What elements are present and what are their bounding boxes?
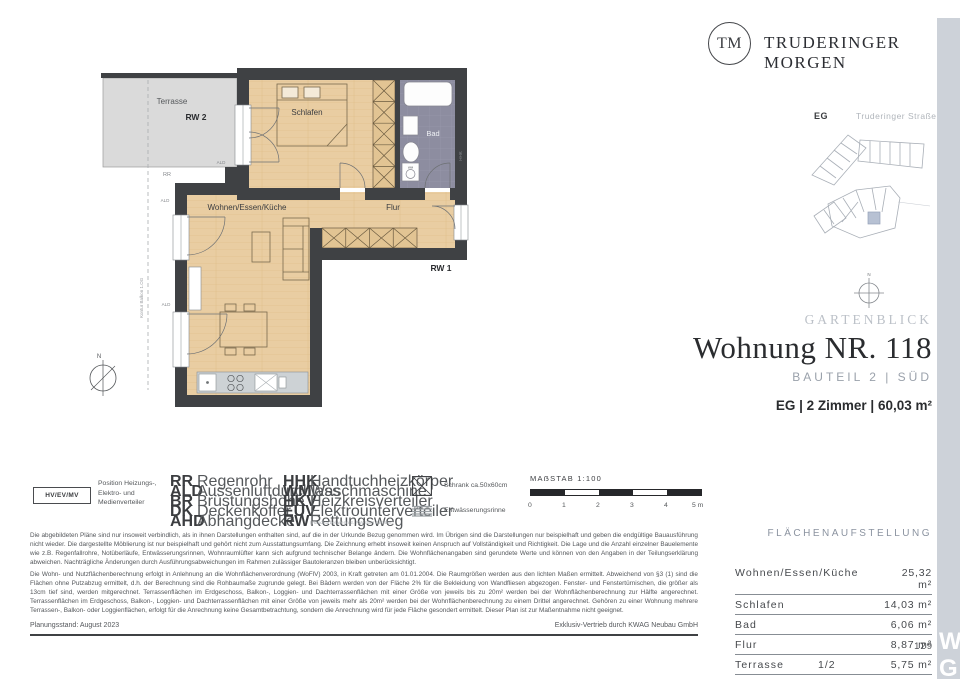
- scale-title: MAẞSTAB 1:100: [530, 474, 602, 483]
- brand-initials: TM: [717, 35, 742, 53]
- ald-label: ALD: [161, 198, 171, 203]
- plan-north-label: N: [97, 354, 101, 360]
- footer-rule: [30, 634, 698, 636]
- sideboard: [189, 267, 201, 310]
- table-row: Bad6,06 m²: [735, 615, 932, 635]
- compass-icon: N: [851, 268, 887, 310]
- kitchen-counter: [197, 372, 308, 393]
- title-block: GARTENBLICK Wohnung NR. 118 BAUTEIL 2 | …: [632, 312, 932, 413]
- watermark-letter: W: [939, 630, 960, 654]
- brand-logo: TM: [708, 22, 751, 65]
- sitemap-unit-highlight: [868, 212, 880, 224]
- escape-route-2-label: RW 2: [185, 112, 206, 122]
- disclaimer-paragraph-1: Die abgebildeten Pläne sind nur insoweit…: [30, 531, 698, 567]
- table-row: Schlafen14,03 m²: [735, 595, 932, 615]
- scale-tick: 2: [596, 502, 600, 509]
- scale-tick: 4: [664, 502, 668, 509]
- room-label-bad: Bad: [426, 129, 439, 138]
- ald-label: ALD: [162, 302, 172, 307]
- brand-name: TRUDERINGER MORGEN: [764, 33, 960, 73]
- schrank-label: Schrank ca.50x60cm: [444, 482, 507, 489]
- area-table: FLÄCHENAUFSTELLUNG Wohnen/Essen/Küche25,…: [735, 528, 932, 675]
- sitemap-drawing: [798, 128, 938, 246]
- scale-tick: 0: [528, 502, 532, 509]
- category-label: GARTENBLICK: [632, 312, 932, 328]
- room-label-flur: Flur: [386, 203, 400, 212]
- sitemap-floor-label: EG: [814, 111, 828, 121]
- page-title: Wohnung NR. 118: [632, 330, 932, 366]
- watermark-letter: G: [939, 657, 958, 679]
- scale-tick: 3: [630, 502, 634, 509]
- rinne-label: Entwässerungsrinne: [444, 507, 506, 514]
- distributor-box: HV/EV/MV: [33, 487, 91, 504]
- terrace-floor: [103, 78, 237, 167]
- sink: [403, 116, 418, 135]
- toilet: [403, 142, 419, 162]
- schrank-symbol: [412, 476, 432, 496]
- plan-compass: N: [90, 354, 116, 396]
- page-number: 129: [893, 641, 933, 652]
- apartment-summary: EG | 2 Zimmer | 60,03 m²: [632, 398, 932, 413]
- planning-status: Planungsstand: August 2023: [30, 622, 119, 629]
- area-table-title: FLÄCHENAUFSTELLUNG: [735, 528, 932, 539]
- disclaimer-paragraph-2: Die Wohn- und Nutzflächenberechnung erfo…: [30, 570, 698, 615]
- rinne-symbol: [412, 505, 432, 517]
- living-floor: [187, 190, 310, 395]
- washing-machine: WM: [402, 163, 419, 181]
- room-label-wohnen: Wohnen/Essen/Küche: [207, 203, 287, 212]
- floor-plan: Kontur Balkon 1.OG WM: [55, 60, 475, 420]
- ald-label: ALD: [217, 160, 227, 165]
- scale-bar: [530, 489, 702, 496]
- sitemap-street-label: Truderinger Straße: [856, 111, 937, 121]
- bathtub: [404, 82, 452, 106]
- compass-north-label: N: [867, 272, 870, 277]
- wm-label: WM: [408, 166, 414, 170]
- room-label-terrasse: Terrasse: [157, 97, 188, 106]
- table-row: Wohnen/Essen/Küche25,32 m²: [735, 563, 932, 595]
- rr-label: RR: [163, 172, 171, 178]
- escape-route-1-label: RW 1: [430, 263, 451, 273]
- building-subtitle: BAUTEIL 2 | SÜD: [632, 370, 932, 384]
- hhk-label: HHK: [458, 151, 463, 161]
- balcony-contour-label: Kontur Balkon 1.OG: [139, 277, 144, 318]
- table-row: Terrasse1/25,75 m²: [735, 655, 932, 675]
- watermark-bar: W G: [937, 18, 960, 679]
- area-table-rows: Wohnen/Essen/Küche25,32 m² Schlafen14,03…: [735, 563, 932, 675]
- hall-wardrobe: [322, 228, 417, 248]
- scale-tick: 5 m: [692, 502, 703, 509]
- distribution-note: Exklusiv-Vertrieb durch KWAG Neubau GmbH: [398, 622, 698, 629]
- room-label-schlafen: Schlafen: [291, 108, 322, 117]
- distributor-label: Position Heizungs-, Elektro- und Medienv…: [98, 479, 157, 508]
- rw-note: (Handkurbel wenn 2. RW über Fenster): [310, 521, 394, 526]
- scale-tick: 1: [562, 502, 566, 509]
